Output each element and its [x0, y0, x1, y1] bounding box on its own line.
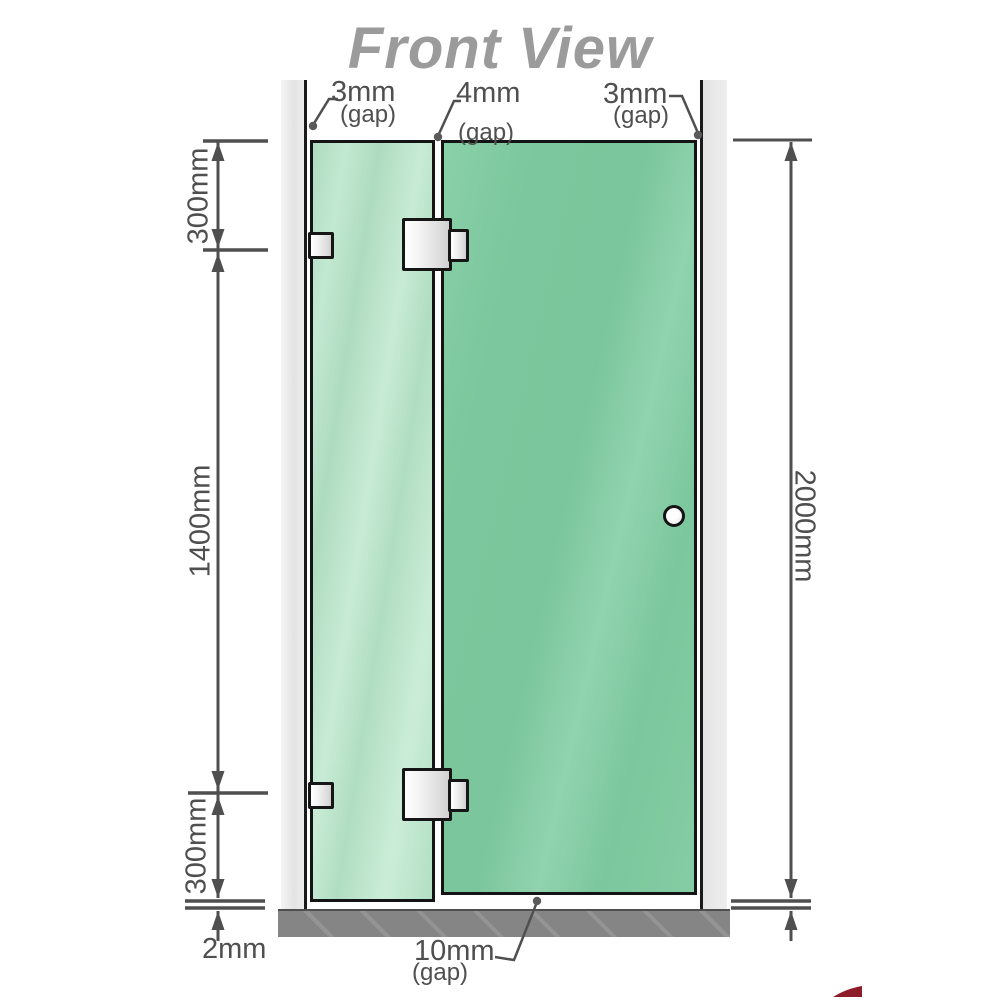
hinge-plate-large [402, 218, 452, 271]
overall-height-label: 2000mm [790, 470, 819, 583]
hinge-plate-small [448, 779, 469, 812]
height-label-mid-1400: 1400mm [187, 465, 216, 578]
glass-hinge-lower [402, 768, 469, 821]
hinge-plate-small [448, 229, 469, 262]
gap-qualifier-left: (gap) [340, 103, 396, 127]
floor-base-bar [278, 909, 730, 937]
gap-qualifier-middle: (gap) [458, 121, 514, 145]
door-bottom-gap-qualifier: (gap) [412, 961, 468, 985]
glass-hinge-upper [402, 218, 469, 271]
door-glass-panel [441, 140, 697, 895]
gap-label-middle: 4mm [456, 79, 520, 108]
left-wall-strip [281, 80, 307, 909]
front-view-diagram: Front View [0, 0, 1000, 1000]
floor-gap-label: 2mm [202, 935, 266, 964]
height-label-bottom-300: 300mm [183, 798, 212, 895]
wall-bracket-upper [308, 232, 334, 259]
height-label-top-300: 300mm [185, 148, 214, 245]
door-knob-handle [663, 505, 685, 527]
gap-qualifier-right: (gap) [613, 104, 669, 128]
partial-logo-mark [833, 986, 862, 997]
hinge-plate-large [402, 768, 452, 821]
right-wall-strip [700, 80, 727, 909]
wall-bracket-lower [308, 782, 334, 809]
diagram-title: Front View [0, 20, 1000, 78]
